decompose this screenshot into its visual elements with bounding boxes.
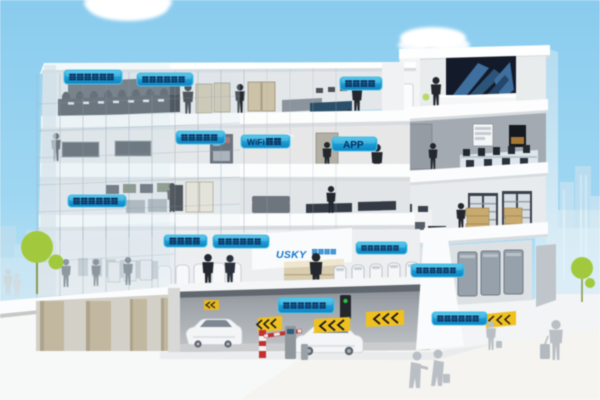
svg-text:WiFi: WiFi (247, 137, 265, 147)
svg-text:APP: APP (343, 140, 364, 151)
svg-text:USKY: USKY (276, 249, 307, 261)
